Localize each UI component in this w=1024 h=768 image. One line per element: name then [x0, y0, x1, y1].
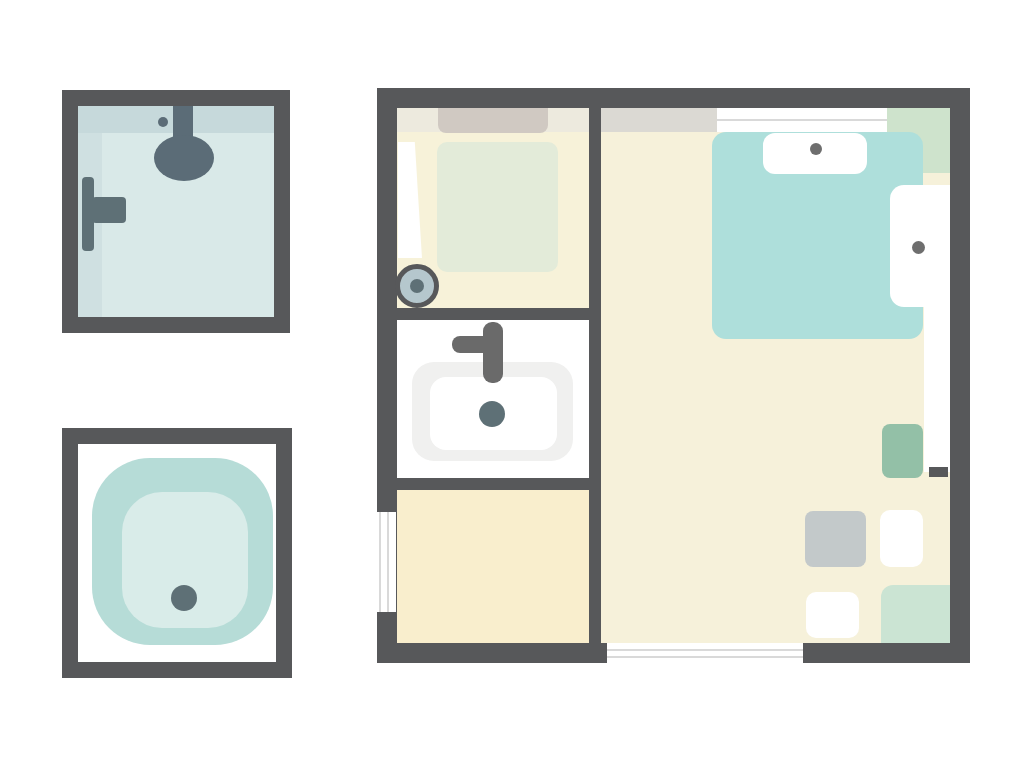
wall-stub: [929, 467, 948, 477]
window-pane-line: [607, 656, 803, 658]
white-ottoman-bottom: [806, 592, 859, 638]
bathroom-green-mat: [437, 142, 558, 272]
shower-valve-handle-icon: [92, 197, 126, 223]
door-recess-strip: [924, 307, 950, 472]
green-stool: [882, 424, 923, 478]
gray-ottoman: [805, 511, 866, 567]
bathtub-figure: [62, 428, 292, 678]
bathtub-drain-icon: [171, 585, 197, 611]
round-fixture-hub: [410, 279, 424, 293]
pillow-button-dot: [810, 143, 822, 155]
bedroom-top-band: [601, 108, 717, 132]
window-pane-line: [379, 512, 381, 612]
window-pane-line: [607, 649, 803, 651]
window-bottom-wall: [607, 643, 803, 664]
round-fixture-icon: [395, 264, 439, 308]
window-left-wall: [374, 512, 396, 612]
apartment-floor-plan: [377, 88, 970, 663]
sink-drain-icon: [479, 401, 505, 427]
shower-dot: [158, 117, 168, 127]
bedside-table: [890, 185, 950, 307]
closet-line: [717, 119, 887, 121]
shower-stall-figure: [62, 90, 290, 333]
closet-band: [717, 108, 887, 132]
bedside-table-knob-dot: [912, 241, 925, 254]
pillow: [763, 133, 867, 174]
shower-head-icon: [154, 135, 214, 181]
white-ottoman-right: [880, 510, 923, 567]
floor-plan-canvas: [0, 0, 1024, 768]
window-pane-line: [387, 512, 389, 612]
faucet-icon: [483, 322, 503, 383]
room-laundry: [397, 490, 589, 643]
corner-green-unit: [881, 585, 950, 643]
bathroom-doormat: [438, 108, 548, 133]
